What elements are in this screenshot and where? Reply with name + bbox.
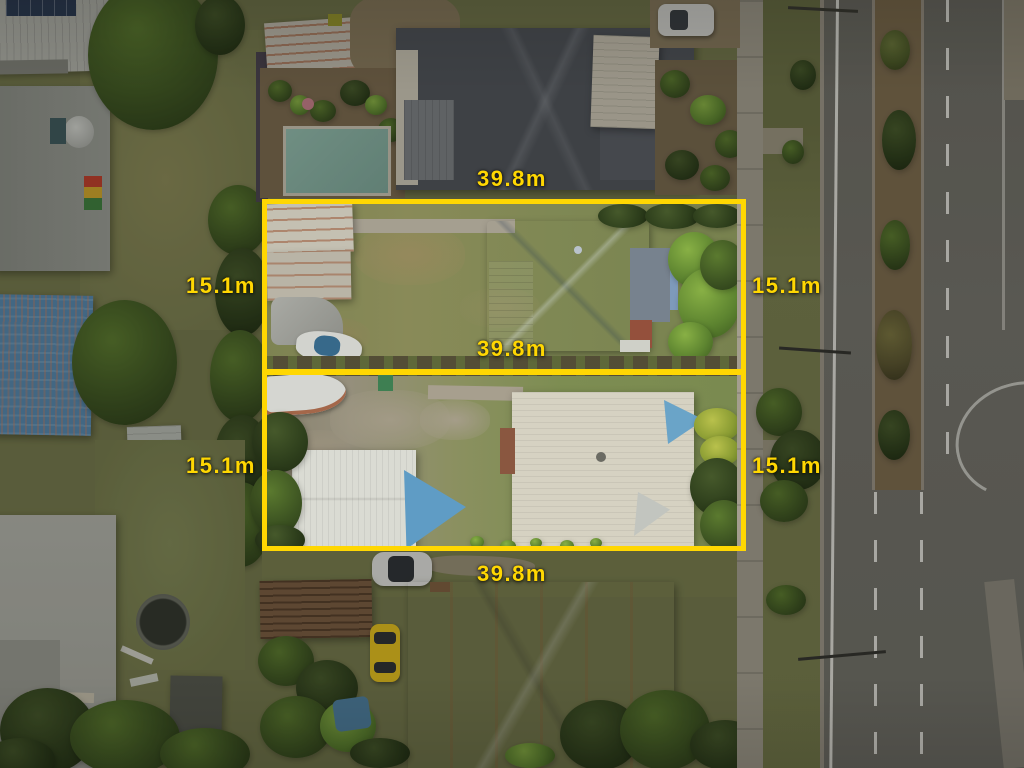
dimension-label-lot1-right-depth: 15.1m	[752, 275, 822, 297]
shrub	[660, 70, 690, 98]
median-plant	[882, 110, 916, 170]
dimension-label-middle-width: 39.8m	[477, 338, 547, 360]
awning	[0, 59, 68, 74]
lane-dashes	[874, 492, 877, 768]
tree	[160, 728, 250, 768]
road-curb	[820, 0, 824, 768]
aerial-photo-canvas: 39.8m 15.1m 15.1m 39.8m 15.1m 15.1m 39.8…	[0, 0, 1024, 768]
parked-car-white	[372, 552, 432, 586]
parked-car-yellow	[370, 624, 400, 682]
median-plant	[878, 410, 910, 460]
tree	[72, 300, 177, 425]
shrub	[268, 80, 292, 102]
cream-shed-roof	[590, 35, 659, 129]
trampoline	[136, 594, 190, 650]
swimming-pool	[283, 126, 391, 196]
dimension-label-bottom-width: 39.8m	[477, 563, 547, 585]
shrub	[365, 95, 387, 115]
skillion-roof	[404, 100, 454, 180]
verge-shrub	[756, 388, 802, 436]
shrub	[665, 150, 699, 180]
verge-shrub	[760, 480, 808, 522]
flower-bush	[302, 98, 314, 110]
dimension-label-top-width: 39.8m	[477, 168, 547, 190]
lot-boundary-outline	[262, 199, 746, 551]
shrub	[700, 165, 730, 191]
palm	[505, 743, 555, 768]
car-glass-roof	[388, 556, 414, 582]
car-rear-window	[374, 662, 396, 673]
storage-crates	[84, 176, 102, 210]
median-plant	[880, 30, 910, 70]
shrub	[690, 95, 726, 125]
verge-grass-right	[763, 0, 823, 768]
median-plant	[880, 220, 910, 270]
lane-dashes	[920, 492, 923, 768]
lane-dashes	[946, 0, 949, 480]
verge-shrub	[766, 585, 806, 615]
verge-shrub	[782, 140, 804, 164]
wheelie-bin	[328, 14, 342, 26]
solar-panels	[6, 0, 76, 16]
dimension-label-lot2-left-depth: 15.1m	[186, 455, 256, 477]
wood-bench	[430, 582, 450, 592]
lot-divider-line	[264, 369, 744, 375]
shrub	[350, 738, 410, 768]
dimension-label-lot2-right-depth: 15.1m	[752, 455, 822, 477]
dimension-label-lot1-left-depth: 15.1m	[186, 275, 256, 297]
verge-shrub	[790, 60, 816, 90]
car-windshield	[374, 632, 396, 644]
car-windshield	[670, 10, 688, 30]
parked-car-white-top	[658, 4, 714, 36]
water-tank	[64, 116, 94, 148]
median-plant	[876, 310, 912, 380]
hedge	[210, 330, 270, 422]
road-shoulder	[1004, 0, 1024, 100]
timber-deck	[260, 579, 373, 639]
blue-tarp	[332, 696, 372, 733]
tank-dark	[50, 118, 66, 144]
lounge-chair	[129, 673, 158, 687]
median-strip	[872, 0, 924, 490]
